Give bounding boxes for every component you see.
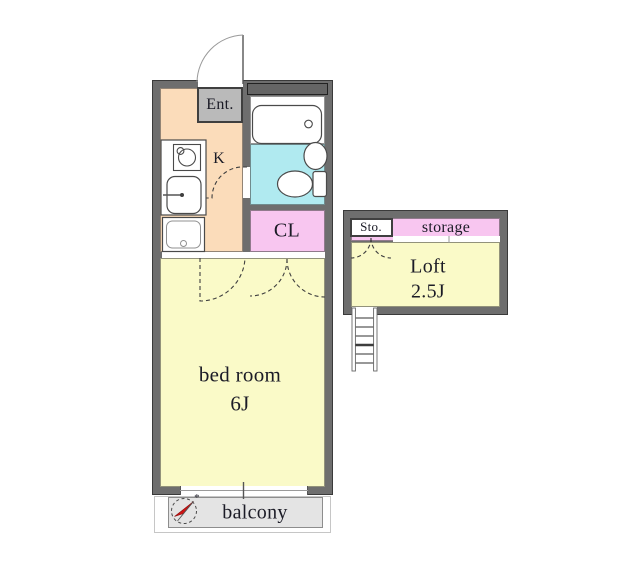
- bedroom-size-label: 6J: [230, 392, 249, 417]
- bath-doorway: [243, 167, 250, 198]
- ladder-icon: [352, 308, 377, 371]
- bath-area: [250, 96, 325, 144]
- storage-label: storage: [422, 219, 470, 237]
- entrance-door-swing: [197, 35, 243, 84]
- ladder-opening: [352, 307, 377, 315]
- bath-window: [247, 83, 328, 95]
- bath-floor: [250, 144, 325, 205]
- closet-label: CL: [274, 220, 300, 243]
- kitchen-label: K: [213, 150, 225, 168]
- sto-label: Sto.: [360, 219, 382, 235]
- floor-plan: Ent. K CL bed room 6J Sto. storage Loft …: [0, 0, 640, 570]
- compass-north-mark: *: [194, 492, 200, 504]
- loft-size-label: 2.5J: [411, 281, 445, 304]
- bedroom-label: bed room: [199, 363, 281, 388]
- balcony-label: balcony: [222, 502, 287, 525]
- entrance-label: Ent.: [206, 96, 233, 114]
- loft-label: Loft: [410, 256, 446, 279]
